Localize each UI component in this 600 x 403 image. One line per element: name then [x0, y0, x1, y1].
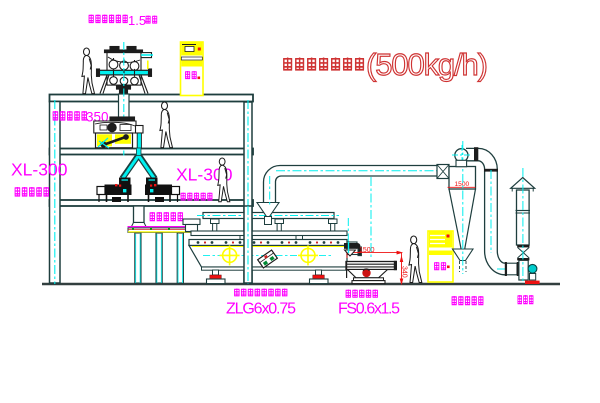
svg-text:340: 340: [400, 266, 407, 278]
svg-text:1500: 1500: [359, 247, 375, 254]
svg-text:FS0.6x1.5: FS0.6x1.5: [338, 301, 400, 318]
svg-text:ZLG6x0.75: ZLG6x0.75: [226, 301, 296, 318]
svg-text:1500: 1500: [455, 181, 470, 188]
svg-text:1.5: 1.5: [128, 13, 146, 28]
svg-text:XL-300: XL-300: [11, 160, 68, 180]
svg-text:(500kg/h): (500kg/h): [366, 47, 488, 82]
